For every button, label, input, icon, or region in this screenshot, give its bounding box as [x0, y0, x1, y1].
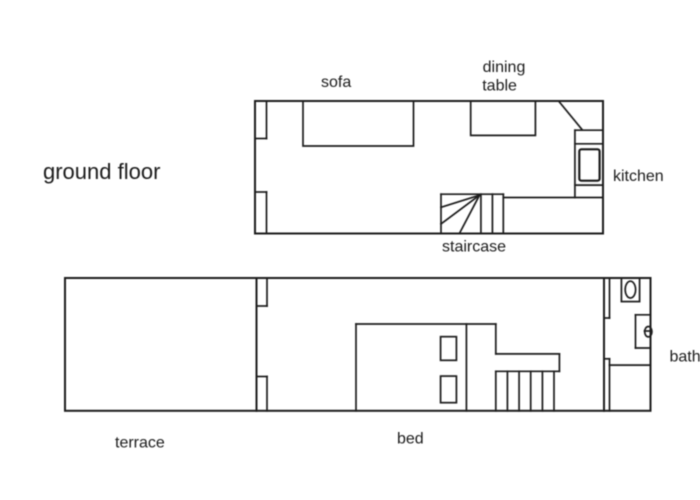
svg-text:dining: dining — [483, 59, 526, 76]
svg-text:sofa: sofa — [321, 74, 351, 91]
svg-text:staircase: staircase — [442, 239, 506, 256]
svg-text:table: table — [482, 78, 517, 95]
svg-text:kitchen: kitchen — [613, 168, 664, 185]
svg-text:bath: bath — [670, 349, 700, 366]
svg-text:ground floor: ground floor — [43, 159, 160, 184]
svg-text:bed: bed — [397, 431, 424, 448]
svg-text:terrace: terrace — [115, 435, 165, 452]
